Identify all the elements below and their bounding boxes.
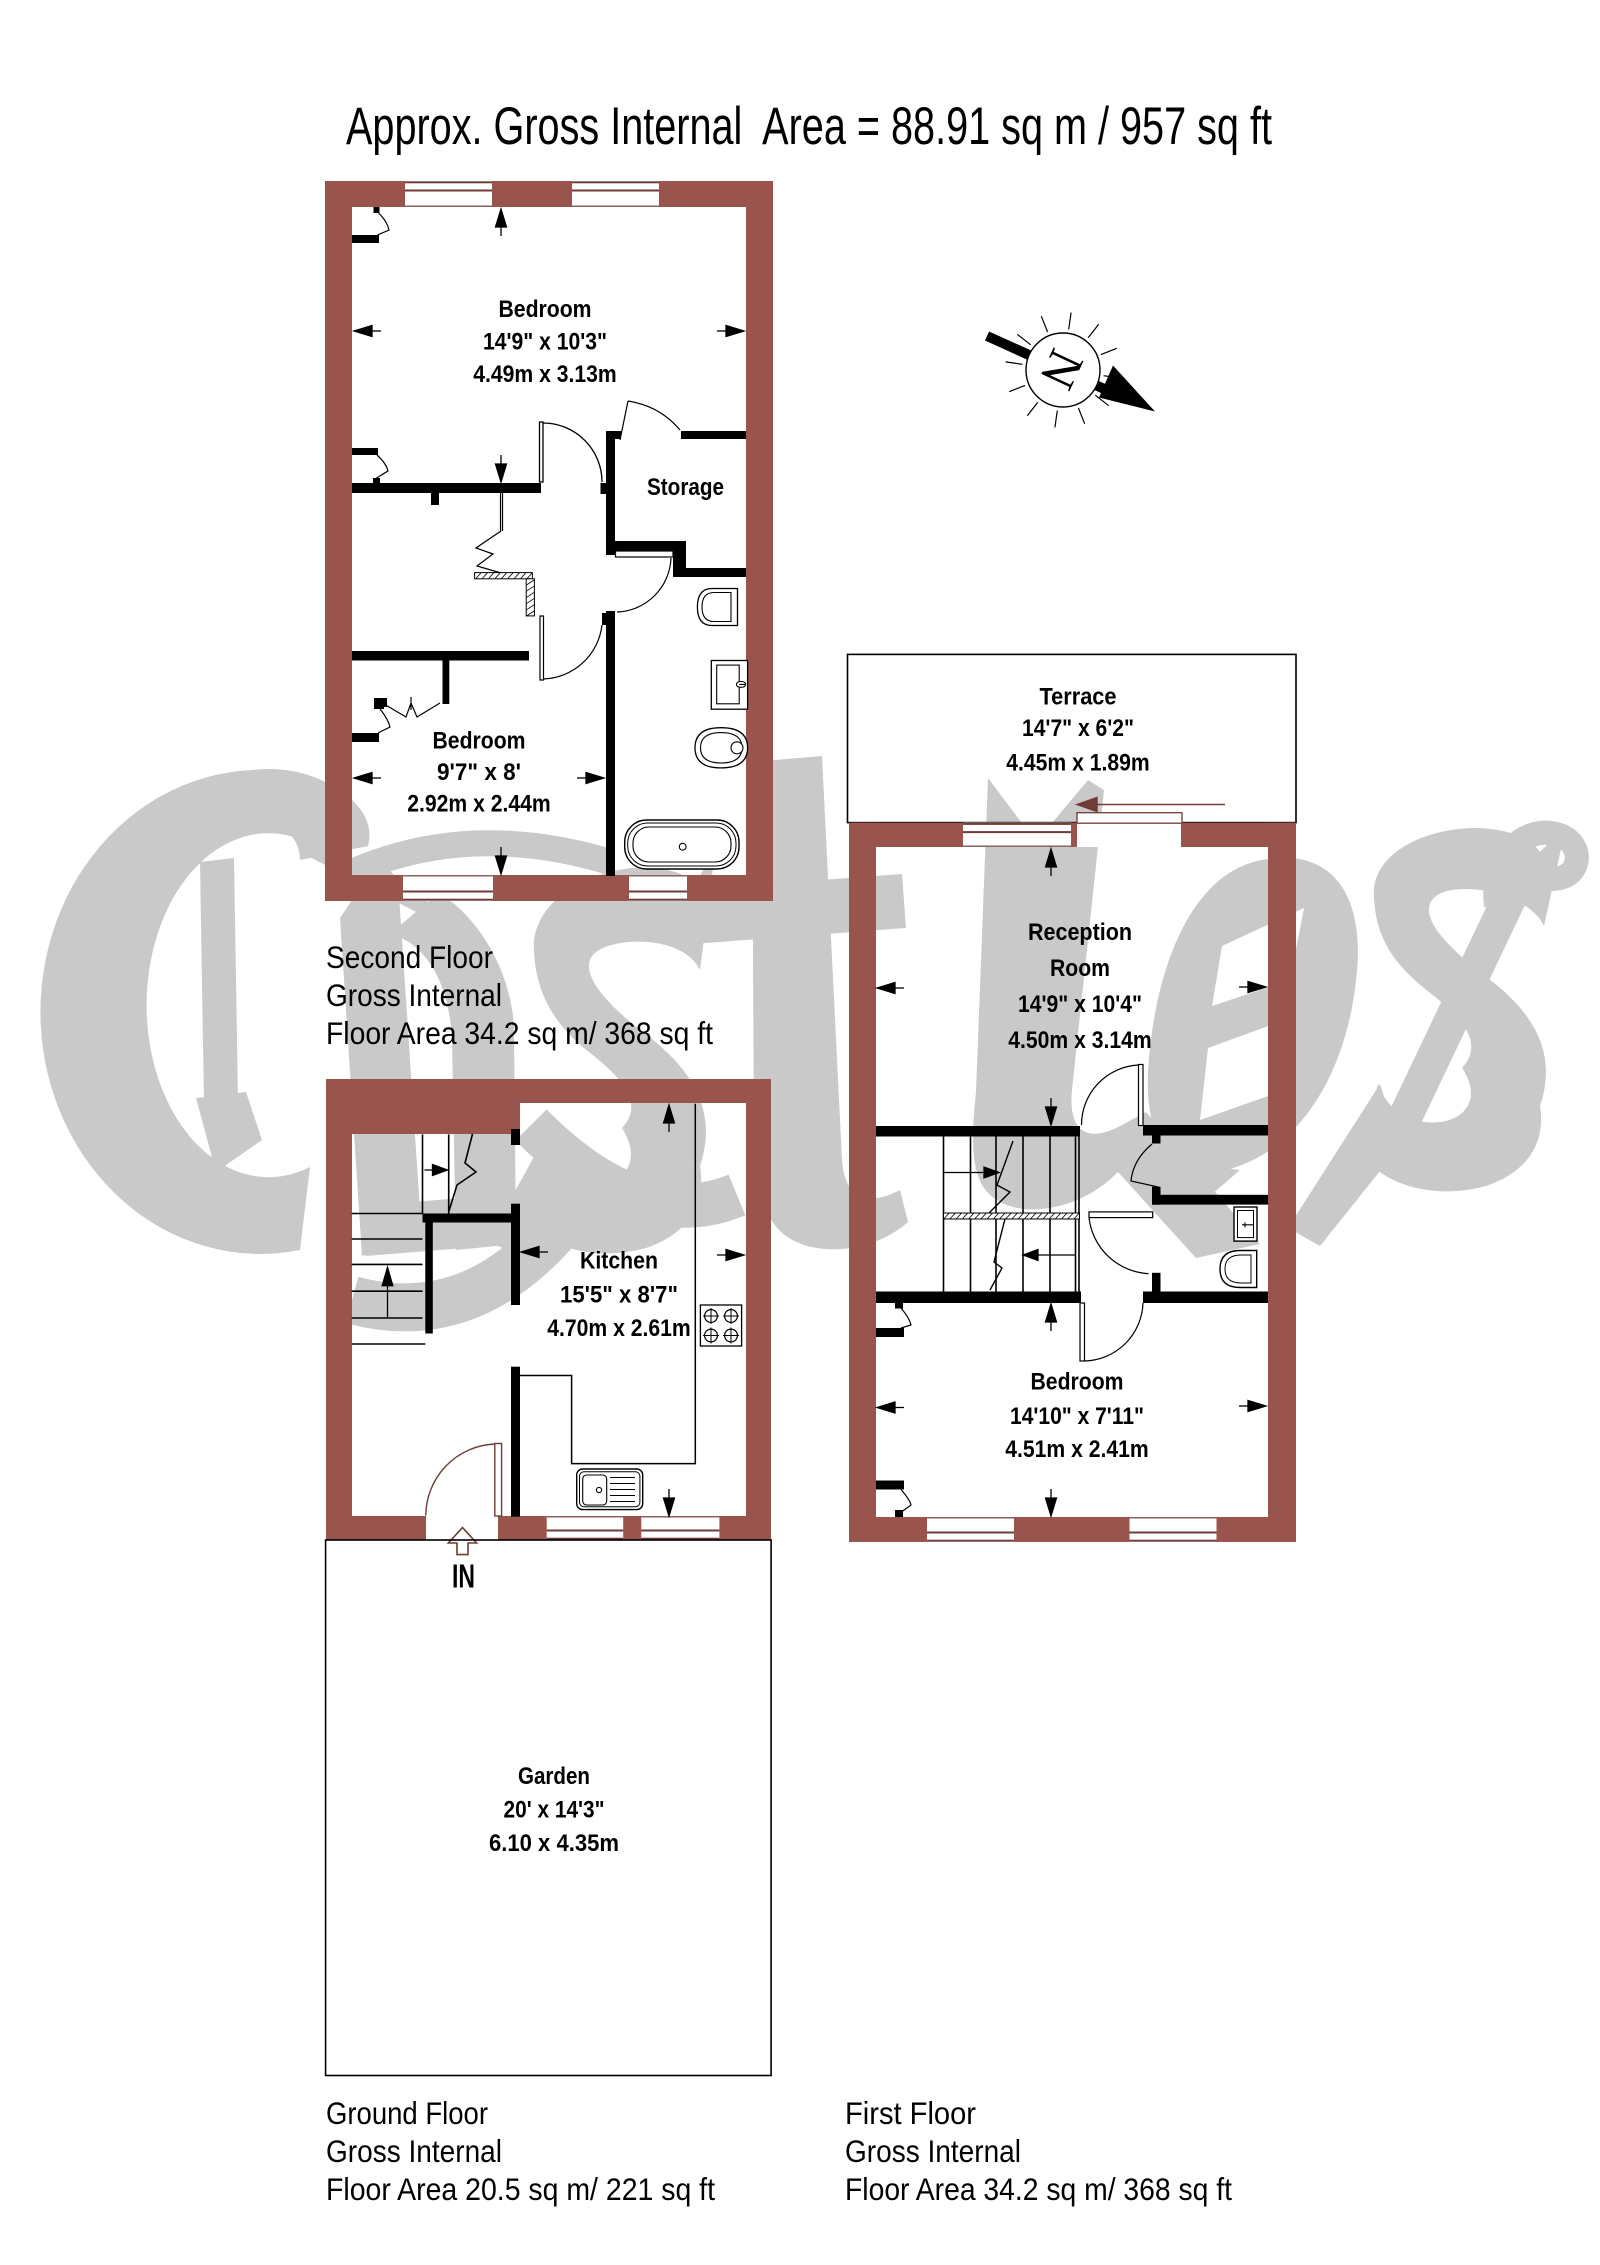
svg-text:Gross Internal: Gross Internal	[326, 2133, 502, 2169]
svg-text:9'7" x 8': 9'7" x 8'	[437, 759, 521, 786]
svg-text:14'9" x 10'4": 14'9" x 10'4"	[1018, 991, 1142, 1018]
svg-text:Floor Area 20.5 sq m/ 221 sq f: Floor Area 20.5 sq m/ 221 sq ft	[326, 2171, 715, 2207]
svg-text:Ground Floor: Ground Floor	[326, 2095, 488, 2131]
svg-text:Bedroom: Bedroom	[433, 727, 526, 754]
svg-text:Storage: Storage	[647, 474, 724, 501]
svg-text:Bedroom: Bedroom	[499, 296, 592, 323]
svg-text:15'5" x 8'7": 15'5" x 8'7"	[560, 1281, 678, 1308]
svg-text:Floor Area 34.2 sq m/ 368 sq f: Floor Area 34.2 sq m/ 368 sq ft	[845, 2171, 1232, 2207]
svg-text:4.50m x 3.14m: 4.50m x 3.14m	[1008, 1027, 1152, 1054]
svg-text:Floor Area 34.2 sq m/ 368 sq f: Floor Area 34.2 sq m/ 368 sq ft	[326, 1015, 713, 1051]
svg-text:Terrace: Terrace	[1040, 683, 1117, 710]
svg-text:4.51m x 2.41m: 4.51m x 2.41m	[1005, 1436, 1149, 1463]
svg-text:Kitchen: Kitchen	[580, 1248, 658, 1275]
svg-text:20' x 14'3": 20' x 14'3"	[504, 1796, 605, 1823]
svg-text:14'9" x 10'3": 14'9" x 10'3"	[483, 329, 607, 356]
svg-text:Second Floor: Second Floor	[326, 939, 493, 975]
svg-text:Reception: Reception	[1028, 919, 1132, 946]
svg-text:Gross Internal: Gross Internal	[326, 977, 502, 1013]
svg-text:Garden: Garden	[518, 1763, 590, 1790]
svg-text:Room: Room	[1050, 955, 1110, 982]
svg-text:Approx. Gross Internal Area =: Approx. Gross Internal Area = 88.91 sq m…	[346, 97, 1272, 156]
svg-text:14'10" x 7'11": 14'10" x 7'11"	[1010, 1403, 1144, 1430]
svg-text:4.49m x 3.13m: 4.49m x 3.13m	[473, 361, 617, 388]
svg-text:2.92m x 2.44m: 2.92m x 2.44m	[407, 790, 551, 817]
svg-text:4.45m x 1.89m: 4.45m x 1.89m	[1006, 749, 1150, 776]
svg-text:Gross Internal: Gross Internal	[845, 2133, 1021, 2169]
svg-text:First Floor: First Floor	[845, 2095, 976, 2131]
svg-text:IN: IN	[452, 1558, 475, 1595]
svg-text:14'7" x 6'2": 14'7" x 6'2"	[1022, 715, 1134, 742]
svg-text:Bedroom: Bedroom	[1031, 1368, 1124, 1395]
svg-text:6.10 x 4.35m: 6.10 x 4.35m	[489, 1830, 619, 1857]
svg-text:4.70m x 2.61m: 4.70m x 2.61m	[547, 1315, 691, 1342]
